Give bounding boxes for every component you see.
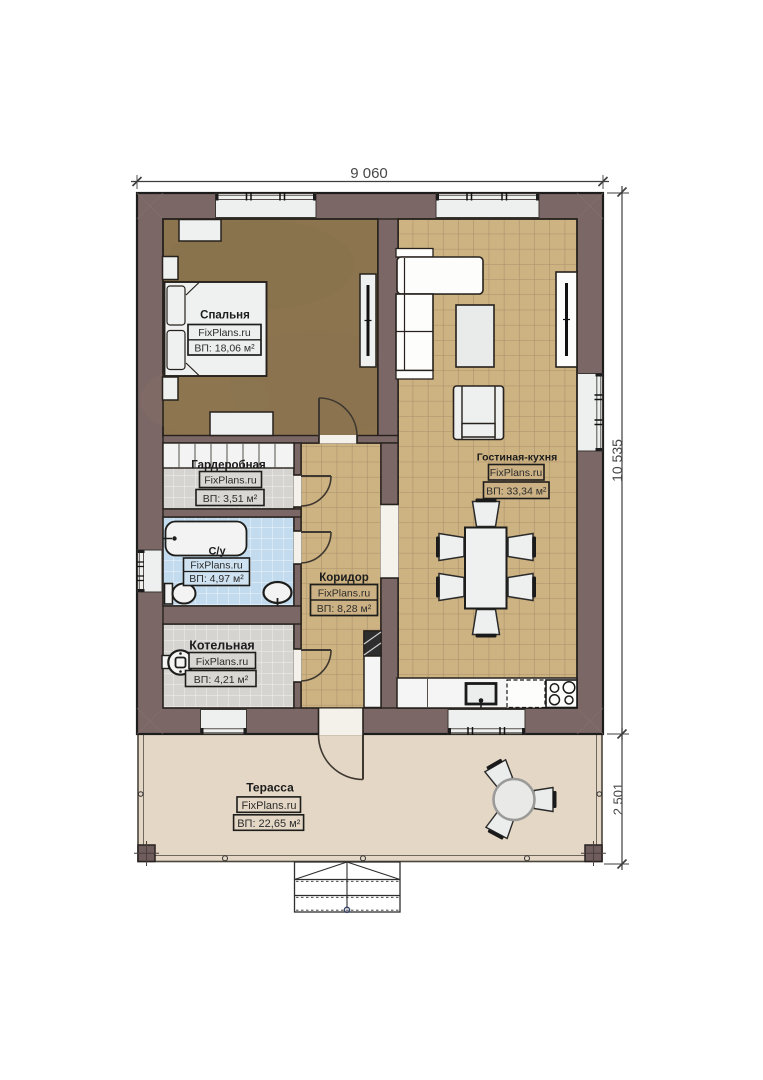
svg-text:ВП: 4,21 м²: ВП: 4,21 м² (194, 674, 249, 686)
svg-text:ВП: 3,51 м²: ВП: 3,51 м² (203, 493, 258, 505)
svg-text:ВП: 33,34 м²: ВП: 33,34 м² (486, 485, 547, 497)
svg-text:FixPlans.ru: FixPlans.ru (318, 587, 371, 599)
svg-text:9 060: 9 060 (350, 165, 388, 182)
svg-text:FixPlans.ru: FixPlans.ru (241, 800, 296, 812)
svg-text:ВП: 8,28 м²: ВП: 8,28 м² (317, 603, 372, 615)
svg-text:10 535: 10 535 (609, 439, 625, 482)
svg-text:Котельная: Котельная (189, 639, 254, 653)
svg-text:Коридор: Коридор (319, 572, 369, 584)
svg-text:Терасса: Терасса (246, 781, 294, 795)
svg-text:Спальня: Спальня (200, 310, 250, 322)
svg-text:FixPlans.ru: FixPlans.ru (198, 327, 251, 339)
svg-text:FixPlans.ru: FixPlans.ru (196, 656, 249, 668)
svg-text:ВП: 18,06 м²: ВП: 18,06 м² (194, 342, 255, 354)
svg-text:ВП: 22,65 м²: ВП: 22,65 м² (237, 818, 301, 830)
svg-text:2 501: 2 501 (611, 783, 626, 816)
svg-text:С/у: С/у (208, 546, 226, 558)
svg-text:Гардеробная: Гардеробная (191, 460, 265, 472)
svg-text:FixPlans.ru: FixPlans.ru (190, 559, 243, 571)
svg-text:FixPlans.ru: FixPlans.ru (204, 475, 257, 487)
svg-text:ВП: 4,97 м²: ВП: 4,97 м² (189, 573, 244, 585)
svg-text:FixPlans.ru: FixPlans.ru (490, 467, 543, 479)
svg-text:Гостиная-кухня: Гостиная-кухня (477, 452, 557, 464)
